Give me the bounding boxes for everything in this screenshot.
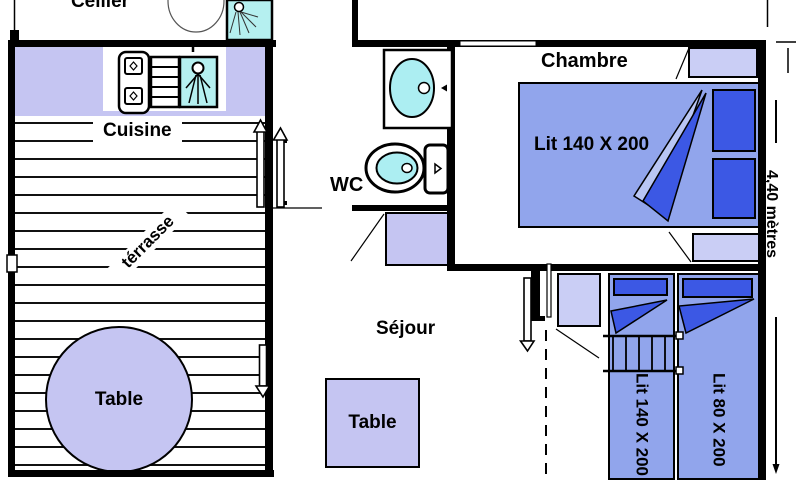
cellier-boiler-icon (168, 0, 224, 32)
ladder-icon (603, 332, 683, 374)
plan-linework (0, 0, 796, 480)
floor-plan: Table Table Lit 140 X 200 Lit 140 X 200 … (0, 0, 796, 480)
washbasin-icon (384, 50, 452, 128)
window-left (7, 255, 17, 272)
toilet-icon (366, 144, 448, 193)
bunk-blanket-fold (611, 300, 667, 333)
single-blanket-fold (679, 299, 754, 333)
shower-stall-icon (180, 45, 217, 107)
dimension-line (773, 42, 796, 474)
window-top (460, 41, 536, 46)
door-panel-line (547, 264, 551, 317)
cellier-shower-icon (227, 0, 272, 40)
drawers-icon (151, 57, 179, 107)
chambre-blanket-fold (634, 90, 706, 221)
stove-icon (119, 52, 149, 113)
